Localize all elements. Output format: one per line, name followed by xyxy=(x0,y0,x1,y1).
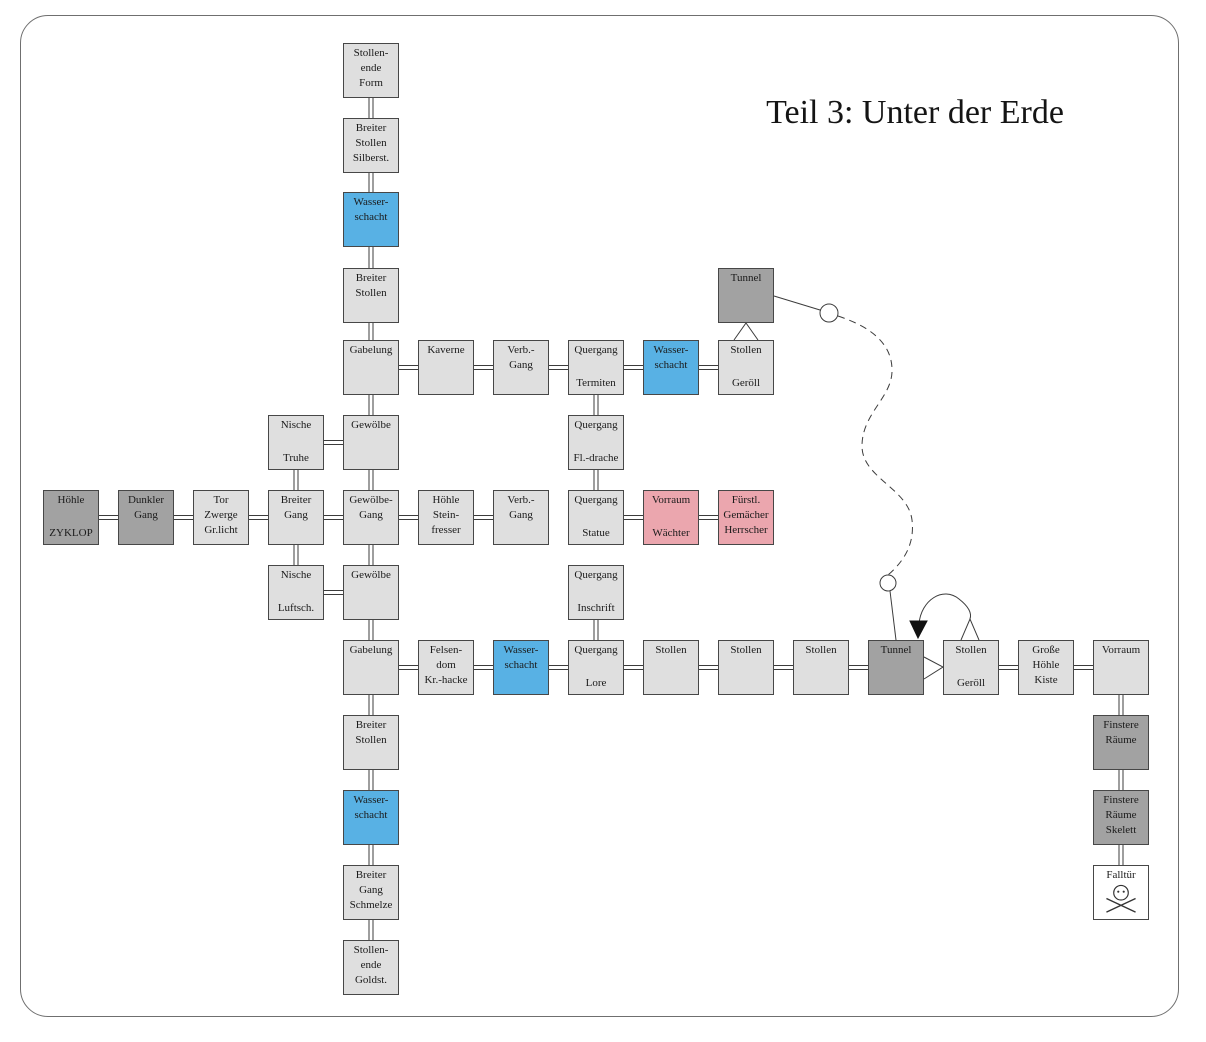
room-label-line: Kiste xyxy=(1019,673,1073,688)
room-label-line: Quergang xyxy=(569,568,623,583)
room-label-line: ende xyxy=(344,958,398,973)
room-stollen-2: Stollen xyxy=(718,640,774,695)
room-h-steinfresser: HöhleStein-fresser xyxy=(418,490,474,545)
room-label-line: Räume xyxy=(1094,733,1148,748)
room-ws-b: Wasser-schacht xyxy=(343,790,399,845)
room-label-line: Verb.- xyxy=(494,343,548,358)
room-stollen-3: Stollen xyxy=(793,640,849,695)
room-feature-label: Truhe xyxy=(269,451,323,466)
room-label-line: Falltür xyxy=(1094,868,1148,883)
room-feature-label: Geröll xyxy=(719,376,773,391)
room-tunnel-a: Tunnel xyxy=(718,268,774,323)
room-falltuer: Falltür xyxy=(1093,865,1149,920)
room-label-line: Nische xyxy=(269,568,323,583)
room-ws-d: Wasser-schacht xyxy=(493,640,549,695)
room-bs-silberst: BreiterStollenSilberst. xyxy=(343,118,399,173)
room-gr-hoehle: GroßeHöhleKiste xyxy=(1018,640,1074,695)
room-label-line: Stollen xyxy=(344,286,398,301)
room-bg-schmelze: BreiterGangSchmelze xyxy=(343,865,399,920)
room-dunkler-gang: DunklerGang xyxy=(118,490,174,545)
room-verb-a: Verb.-Gang xyxy=(493,340,549,395)
room-label-line: Gabelung xyxy=(344,343,398,358)
room-v-waechter: VorraumWächter xyxy=(643,490,699,545)
room-q-statue: QuergangStatue xyxy=(568,490,624,545)
room-q-termiten: QuergangTermiten xyxy=(568,340,624,395)
room-vorraum: Vorraum xyxy=(1093,640,1149,695)
room-bs-b: BreiterStollen xyxy=(343,715,399,770)
room-feature-label: Statue xyxy=(569,526,623,541)
room-label-line: Tunnel xyxy=(719,271,773,286)
room-label-line: Kaverne xyxy=(419,343,473,358)
room-q-inschrift: QuergangInschrift xyxy=(568,565,624,620)
room-label-line: Stollen xyxy=(644,643,698,658)
room-gewoelbe-b: Gewölbe xyxy=(343,565,399,620)
room-label-line: Höhle xyxy=(1019,658,1073,673)
room-label-line: Gabelung xyxy=(344,643,398,658)
room-feature-label: Wächter xyxy=(644,526,698,541)
room-tunnel-b: Tunnel xyxy=(868,640,924,695)
room-ws-c: Wasser-schacht xyxy=(643,340,699,395)
room-label-line: Gang xyxy=(494,358,548,373)
room-felsendom: Felsen-domKr.-hacke xyxy=(418,640,474,695)
rooms-layer: Stollen-endeFormBreiterStollenSilberst.W… xyxy=(0,0,1206,1042)
room-q-lore: QuergangLore xyxy=(568,640,624,695)
room-feature-label: ZYKLOP xyxy=(44,526,98,541)
room-label-line: Gewölbe- xyxy=(344,493,398,508)
room-label-line: Vorraum xyxy=(1094,643,1148,658)
room-label-line: Wasser- xyxy=(494,643,548,658)
room-feature-label: Luftsch. xyxy=(269,601,323,616)
room-label-line: schacht xyxy=(494,658,548,673)
room-label-line: Gang xyxy=(494,508,548,523)
room-label-line: Gr.licht xyxy=(194,523,248,538)
room-gabelung-b: Gabelung xyxy=(343,640,399,695)
room-feature-label: Lore xyxy=(569,676,623,691)
room-label-line: Stollen xyxy=(344,136,398,151)
room-finstere-1: FinstereRäume xyxy=(1093,715,1149,770)
room-label-line: Breiter xyxy=(344,868,398,883)
room-se-goldst: Stollen-endeGoldst. xyxy=(343,940,399,995)
room-label-line: Gewölbe xyxy=(344,418,398,433)
room-label-line: Quergang xyxy=(569,343,623,358)
room-label-line: Schmelze xyxy=(344,898,398,913)
room-feature-label: Geröll xyxy=(944,676,998,691)
room-label-line: Skelett xyxy=(1094,823,1148,838)
room-label-line: Stein- xyxy=(419,508,473,523)
room-label-line: Stollen xyxy=(719,643,773,658)
room-f-gemaecher: Fürstl.GemächerHerrscher xyxy=(718,490,774,545)
room-feature-label: Inschrift xyxy=(569,601,623,616)
room-gewoelbe-gang: Gewölbe-Gang xyxy=(343,490,399,545)
room-label-line: Tunnel xyxy=(869,643,923,658)
room-label-line: Stollen- xyxy=(344,46,398,61)
room-label-line: Höhle xyxy=(44,493,98,508)
room-label-line: Stollen- xyxy=(344,943,398,958)
room-label-line: Gang xyxy=(344,883,398,898)
room-label-line: Dunkler xyxy=(119,493,173,508)
room-label-line: schacht xyxy=(344,808,398,823)
room-st-geroell-a: StollenGeröll xyxy=(718,340,774,395)
room-label-line: Herrscher xyxy=(719,523,773,538)
room-feature-label: Termiten xyxy=(569,376,623,391)
room-gewoelbe-a: Gewölbe xyxy=(343,415,399,470)
room-se-form: Stollen-endeForm xyxy=(343,43,399,98)
room-label-line: Breiter xyxy=(344,271,398,286)
room-st-geroell-b: StollenGeröll xyxy=(943,640,999,695)
room-breiter-gang: BreiterGang xyxy=(268,490,324,545)
room-label-line: ende xyxy=(344,61,398,76)
room-label-line: Silberst. xyxy=(344,151,398,166)
room-label-line: Breiter xyxy=(344,121,398,136)
room-label-line: Wasser- xyxy=(344,195,398,210)
room-label-line: Gang xyxy=(269,508,323,523)
room-label-line: schacht xyxy=(644,358,698,373)
room-verb-b: Verb.-Gang xyxy=(493,490,549,545)
room-label-line: Breiter xyxy=(344,718,398,733)
skull-crossbones-icon xyxy=(1101,883,1141,916)
room-label-line: Finstere xyxy=(1094,793,1148,808)
room-label-line: Felsen- xyxy=(419,643,473,658)
room-label-line: Gemächer xyxy=(719,508,773,523)
room-tor-zwerge: TorZwergeGr.licht xyxy=(193,490,249,545)
room-label-line: Höhle xyxy=(419,493,473,508)
room-bs-a: BreiterStollen xyxy=(343,268,399,323)
room-label-line: Finstere xyxy=(1094,718,1148,733)
room-label-line: Vorraum xyxy=(644,493,698,508)
room-label-line: Zwerge xyxy=(194,508,248,523)
room-label-line: Nische xyxy=(269,418,323,433)
room-q-fldrache: QuergangFl.-drache xyxy=(568,415,624,470)
room-label-line: schacht xyxy=(344,210,398,225)
room-hoehle-zyklop: HöhleZYKLOP xyxy=(43,490,99,545)
room-label-line: Gang xyxy=(119,508,173,523)
room-gabelung-a: Gabelung xyxy=(343,340,399,395)
room-label-line: Stollen xyxy=(944,643,998,658)
room-ws-a: Wasser-schacht xyxy=(343,192,399,247)
room-label-line: Gang xyxy=(344,508,398,523)
room-label-line: Kr.-hacke xyxy=(419,673,473,688)
room-label-line: Quergang xyxy=(569,493,623,508)
room-label-line: Form xyxy=(344,76,398,91)
room-n-truhe: NischeTruhe xyxy=(268,415,324,470)
adventure-map-canvas: Teil 3: Unter der Erde Stollen-endeFormB… xyxy=(0,0,1206,1042)
room-label-line: Quergang xyxy=(569,643,623,658)
room-label-line: Breiter xyxy=(269,493,323,508)
room-label-line: Tor xyxy=(194,493,248,508)
room-n-luftsch: NischeLuftsch. xyxy=(268,565,324,620)
room-label-line: Wasser- xyxy=(644,343,698,358)
room-label-line: Stollen xyxy=(719,343,773,358)
room-label-line: Goldst. xyxy=(344,973,398,988)
room-finstere-2: FinstereRäumeSkelett xyxy=(1093,790,1149,845)
room-label-line: Stollen xyxy=(344,733,398,748)
room-label-line: dom xyxy=(419,658,473,673)
room-label-line: Verb.- xyxy=(494,493,548,508)
room-feature-label: Fl.-drache xyxy=(569,451,623,466)
room-label-line: fresser xyxy=(419,523,473,538)
room-label-line: Stollen xyxy=(794,643,848,658)
room-stollen-1: Stollen xyxy=(643,640,699,695)
room-label-line: Räume xyxy=(1094,808,1148,823)
room-label-line: Wasser- xyxy=(344,793,398,808)
room-label-line: Quergang xyxy=(569,418,623,433)
room-label-line: Fürstl. xyxy=(719,493,773,508)
room-label-line: Große xyxy=(1019,643,1073,658)
room-kaverne: Kaverne xyxy=(418,340,474,395)
room-label-line: Gewölbe xyxy=(344,568,398,583)
